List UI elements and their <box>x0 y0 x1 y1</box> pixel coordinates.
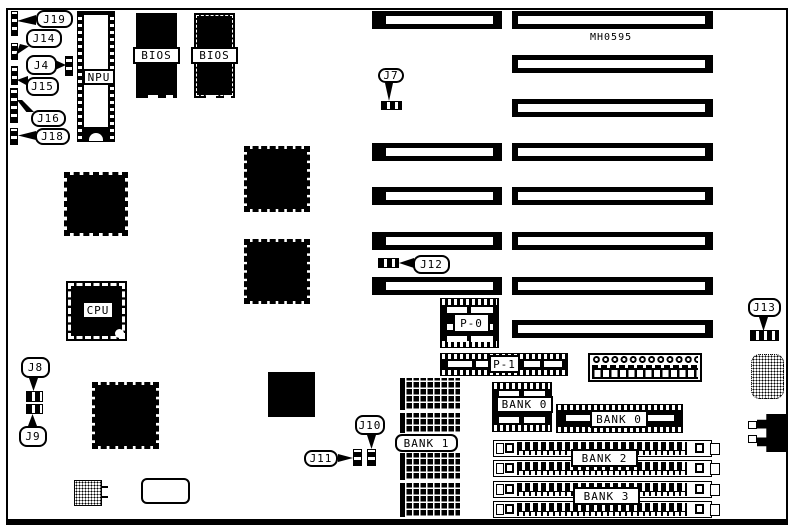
qfp-chip <box>92 382 159 449</box>
pin-row <box>442 299 497 305</box>
bank2-label: BANK 2 <box>571 449 638 467</box>
p0-label: P-0 <box>453 313 490 333</box>
socket-slot <box>448 361 472 367</box>
power-pins <box>592 355 698 364</box>
qfp-chip <box>244 146 310 212</box>
connector-pin <box>748 421 757 429</box>
simm-end <box>710 463 720 475</box>
bank1-label: BANK 1 <box>395 434 458 452</box>
bank3-label: BANK 3 <box>573 487 640 505</box>
cpu-label: CPU <box>82 301 114 319</box>
isa-slot <box>512 232 713 250</box>
pin-row <box>494 425 550 431</box>
bios-right-label: BIOS <box>191 47 238 64</box>
bank0-right-label: BANK 0 <box>590 410 648 428</box>
jumper-j14 <box>11 43 18 60</box>
simm-latch <box>695 504 704 514</box>
jumper-j16 <box>10 88 18 123</box>
bios-left-label: BIOS <box>133 47 180 64</box>
crystal-lead <box>101 496 108 498</box>
callout-j13-text: J13 <box>753 301 776 314</box>
socket-slot <box>471 336 493 342</box>
simm-latch <box>695 443 704 453</box>
callout-j11-text: J11 <box>310 452 333 465</box>
simm-end <box>496 463 504 474</box>
smd-chip <box>268 372 315 417</box>
simm-latch <box>505 484 514 494</box>
qfp-chip <box>64 172 128 236</box>
pin-row <box>517 471 687 475</box>
jumper-j7 <box>381 101 402 110</box>
callout-j12: J12 <box>413 255 450 274</box>
isa-slot <box>512 143 713 161</box>
pin1-marker <box>115 329 124 338</box>
simm-end <box>710 504 720 516</box>
simm-latch <box>505 463 514 473</box>
jumper-j12 <box>378 258 399 268</box>
jumper-j15 <box>11 66 18 85</box>
isa-slot <box>372 11 502 29</box>
power-connector <box>588 353 702 382</box>
socket-slot <box>524 417 545 423</box>
callout-j4: J4 <box>26 55 57 75</box>
isa-slot <box>512 277 713 295</box>
pin-row <box>517 512 687 516</box>
callout-j8-text: J8 <box>28 361 43 374</box>
npu-label: NPU <box>83 69 115 85</box>
simm-latch <box>695 484 704 494</box>
callout-j12-text: J12 <box>420 258 443 271</box>
connector-pin <box>748 435 757 443</box>
isa-slot <box>372 232 502 250</box>
dram-block <box>400 453 460 480</box>
callout-j10-text: J10 <box>359 419 382 432</box>
dram-block <box>400 483 460 517</box>
callout-j19-text: J19 <box>43 13 66 26</box>
simm-end <box>496 504 504 515</box>
callout-j18-text: J18 <box>41 130 64 143</box>
simm-latch <box>505 443 514 453</box>
isa-slot <box>372 143 502 161</box>
isa-slot <box>512 11 713 29</box>
isa-slot <box>512 320 713 338</box>
callout-j18: J18 <box>35 128 70 145</box>
dram-block <box>400 413 460 433</box>
pin-column <box>78 14 82 139</box>
socket-slot <box>499 417 519 423</box>
simm-latch <box>505 504 514 514</box>
crystal <box>74 480 102 506</box>
callout-j8: J8 <box>21 357 50 378</box>
jumper-j18 <box>10 128 18 145</box>
callout-j9: J9 <box>19 426 47 447</box>
power-holes <box>592 368 698 379</box>
callout-j14-text: J14 <box>33 32 56 45</box>
jumper-j13 <box>750 330 779 341</box>
part-number: MH0595 <box>590 32 650 43</box>
socket-slot <box>476 361 488 367</box>
oscillator <box>141 478 190 504</box>
jumper-j8 <box>26 391 43 402</box>
socket-slot <box>447 336 467 342</box>
callout-j10: J10 <box>355 415 385 435</box>
din-connector <box>751 354 784 399</box>
callout-j13: J13 <box>748 298 781 317</box>
socket-slot <box>524 361 540 367</box>
jumper-j19 <box>11 11 18 36</box>
isa-slot <box>372 277 502 295</box>
callout-j16: J16 <box>31 110 66 127</box>
simm-latch <box>695 463 704 473</box>
simm-end <box>710 443 720 455</box>
callout-j7: J7 <box>378 68 404 83</box>
p1-label: P-1 <box>489 355 520 373</box>
jumper-j9 <box>26 404 43 414</box>
crystal-lead <box>101 486 108 488</box>
bank0-left-label: BANK 0 <box>496 396 553 413</box>
chip-notch <box>89 133 103 141</box>
callout-j7-text: J7 <box>383 69 398 82</box>
motherboard-diagram: MH0595 NPU BIOS BIOS CPU J19 J1 <box>0 0 791 527</box>
isa-slot <box>512 187 713 205</box>
socket-slot <box>544 361 562 367</box>
dram-block <box>400 378 460 410</box>
callout-j16-text: J16 <box>37 112 60 125</box>
jumper-j4 <box>65 56 73 76</box>
jumper-j10 <box>367 449 376 466</box>
simm-end <box>496 443 504 454</box>
callout-j15-text: J15 <box>31 80 54 93</box>
callout-j11: J11 <box>304 450 338 467</box>
callout-j9-text: J9 <box>25 430 40 443</box>
simm-end <box>710 484 720 496</box>
qfp-chip <box>244 239 310 304</box>
simm-end <box>496 484 504 495</box>
callout-j15: J15 <box>26 77 59 96</box>
callout-j14: J14 <box>26 29 62 48</box>
jumper-j11 <box>353 449 362 466</box>
pin-row <box>494 383 550 389</box>
callout-j19: J19 <box>36 10 73 28</box>
isa-slot <box>512 55 713 73</box>
isa-slot <box>512 99 713 117</box>
callout-j4-text: J4 <box>34 59 49 72</box>
isa-slot <box>372 187 502 205</box>
